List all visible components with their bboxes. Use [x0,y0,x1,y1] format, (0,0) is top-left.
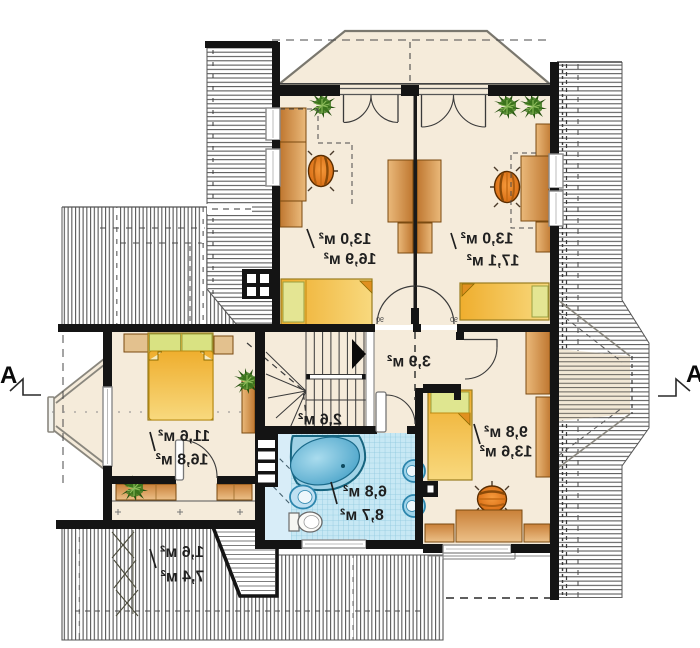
svg-text:6,8 м²: 6,8 м² [343,484,387,501]
svg-text:1,6 м²: 1,6 м² [160,544,204,561]
svg-text:A: A [0,362,17,389]
svg-text:16,8 м²: 16,8 м² [156,452,209,469]
svg-text:13,6 м²: 13,6 м² [480,444,533,461]
svg-text:7,4 м²: 7,4 м² [161,569,205,586]
svg-text:3,9 м²: 3,9 м² [387,354,431,371]
svg-text:90: 90 [376,317,384,324]
svg-text:13,0 м²: 13,0 м² [319,231,372,248]
svg-text:17,1 м²: 17,1 м² [467,253,520,270]
svg-text:A: A [686,361,700,388]
svg-text:9,8 м²: 9,8 м² [484,424,528,441]
svg-text:8,7 м²: 8,7 м² [340,507,384,524]
svg-text:90: 90 [450,317,458,324]
svg-text:13,0 м²: 13,0 м² [461,231,514,248]
svg-text:2,6 м²: 2,6 м² [298,412,342,429]
svg-text:11,6 м²: 11,6 м² [158,428,210,445]
svg-text:16,9 м²: 16,9 м² [324,251,377,268]
